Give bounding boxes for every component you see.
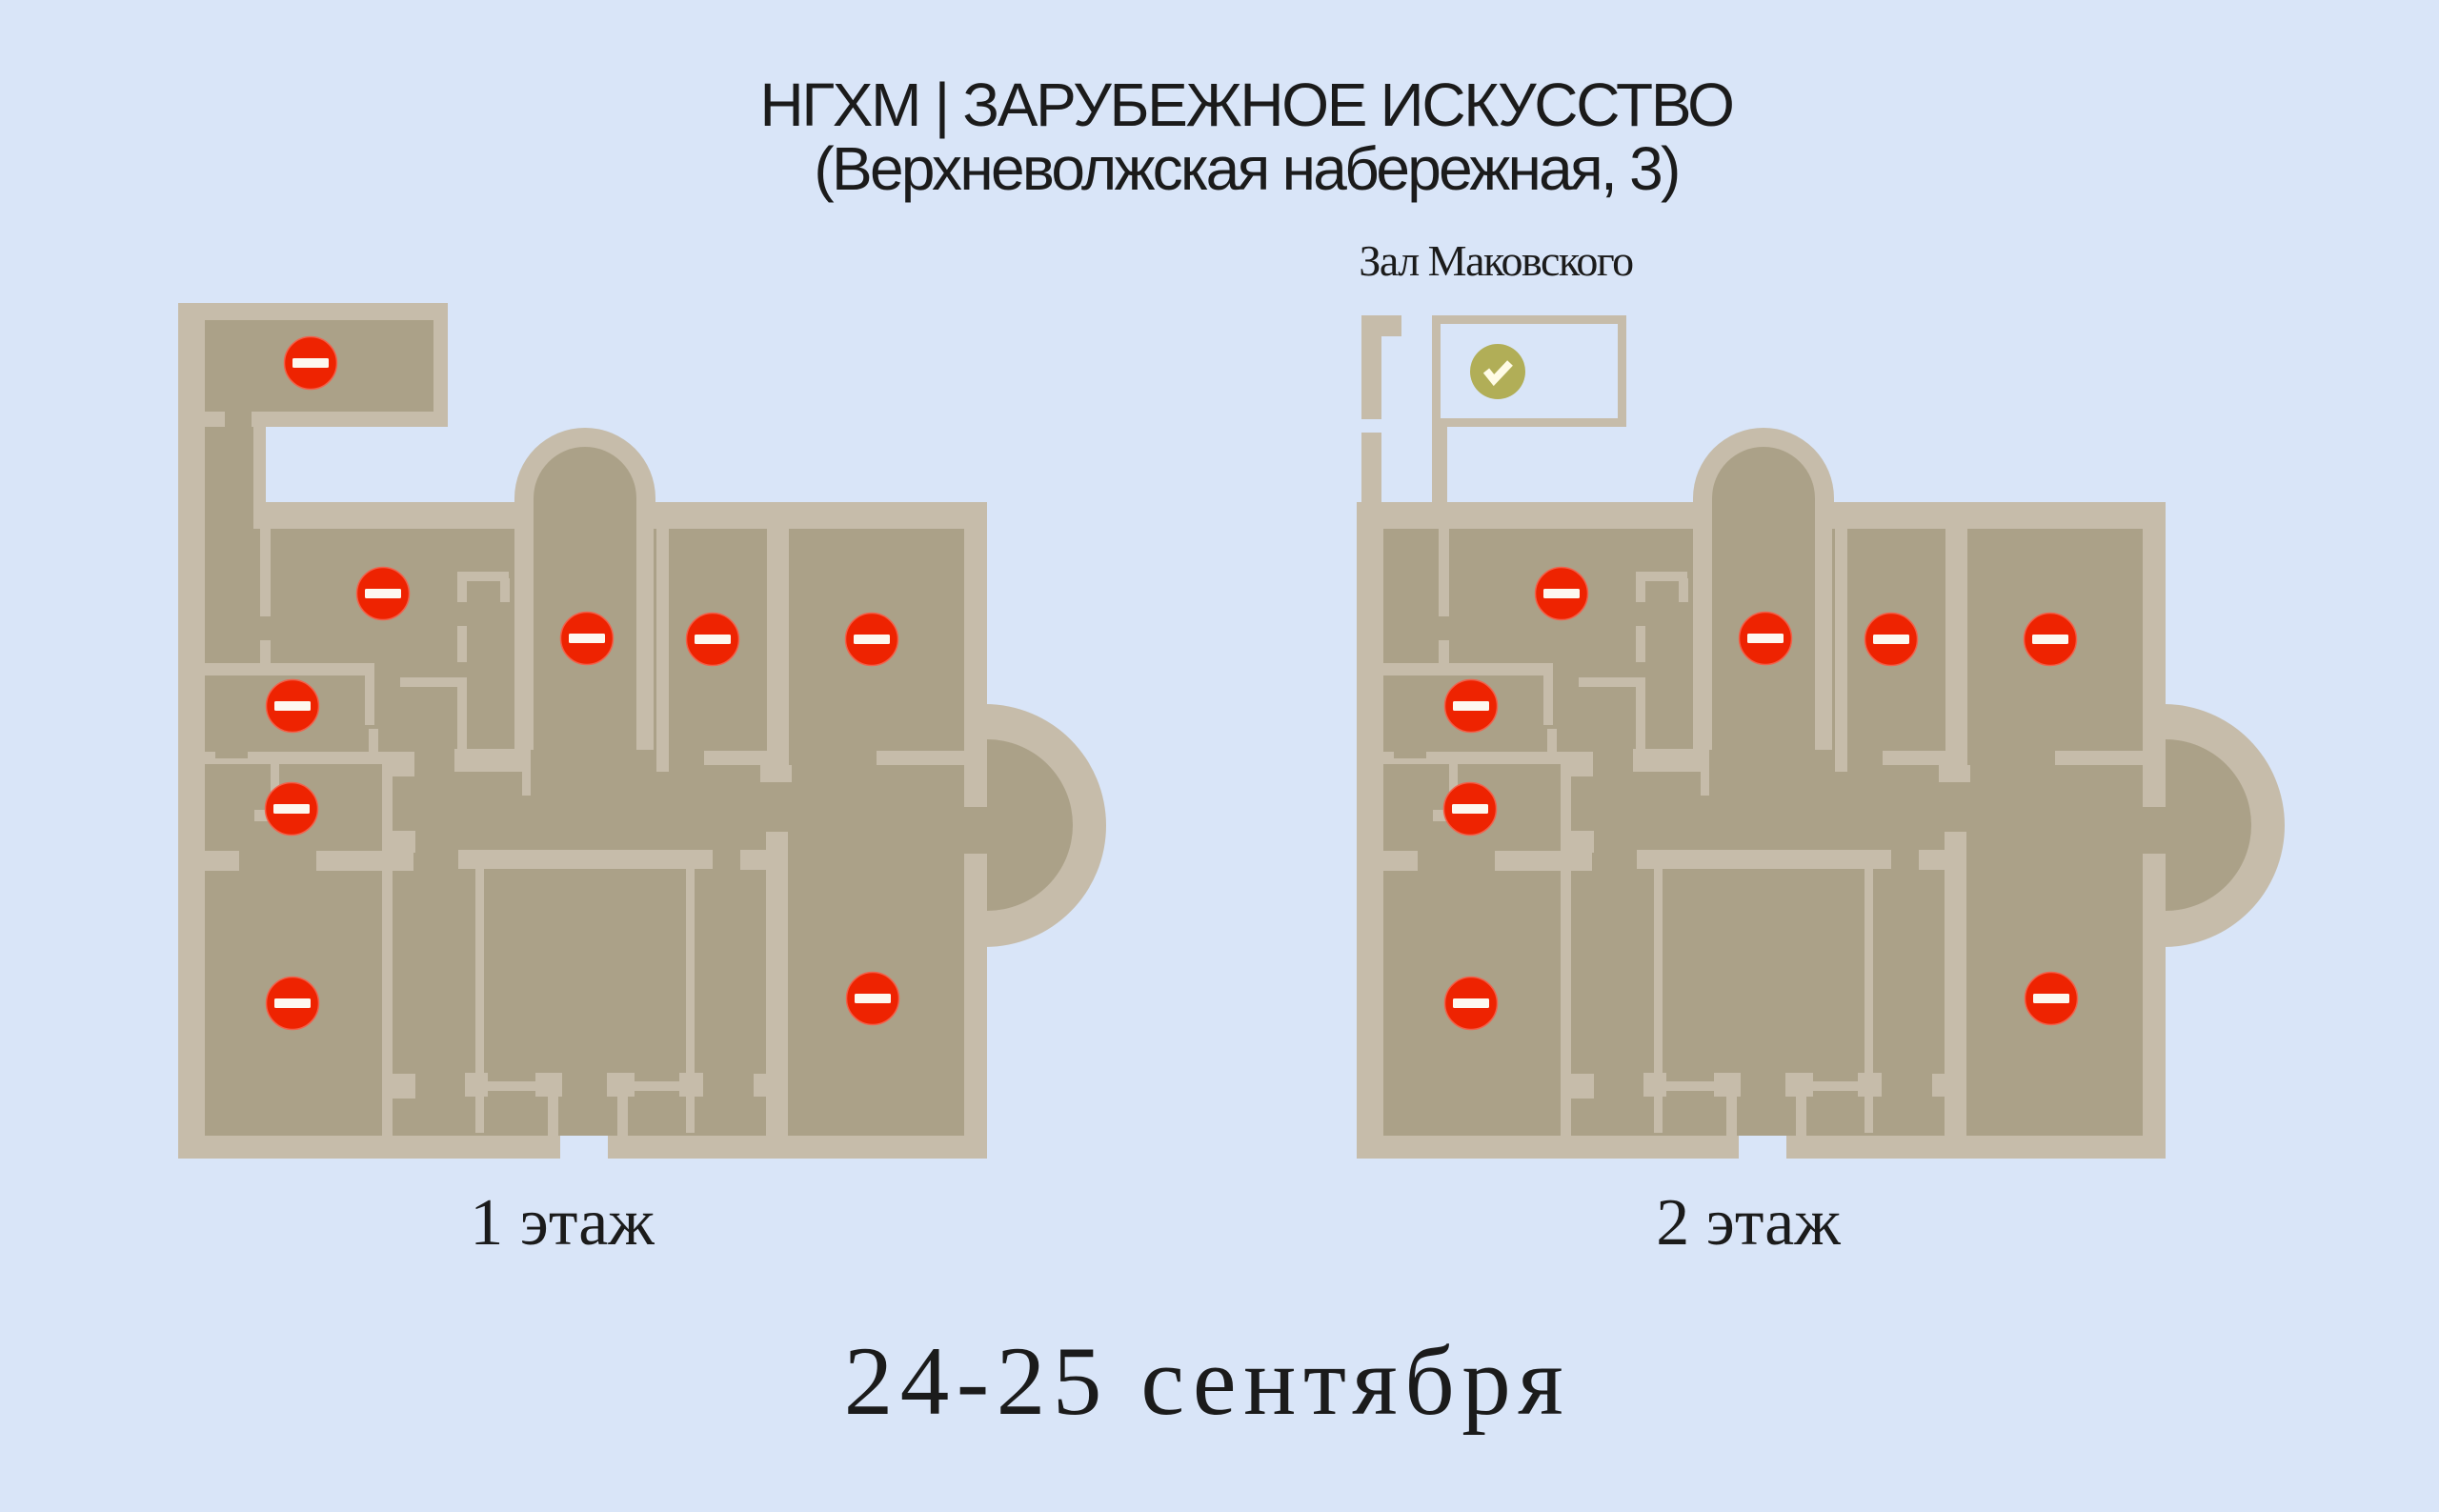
svg-text:24-25 сентября: 24-25 сентября <box>844 1327 1571 1436</box>
svg-text:Зал Маковского: Зал Маковского <box>1359 236 1633 285</box>
svg-text:1 этаж: 1 этаж <box>470 1186 655 1260</box>
svg-text:НГХМ | ЗАРУБЕЖНОЕ ИСКУССТВО: НГХМ | ЗАРУБЕЖНОЕ ИСКУССТВО <box>759 71 1732 139</box>
svg-text:2 этаж: 2 этаж <box>1656 1186 1841 1260</box>
svg-text:(Верхневолжская набережная, 3): (Верхневолжская набережная, 3) <box>814 134 1678 203</box>
